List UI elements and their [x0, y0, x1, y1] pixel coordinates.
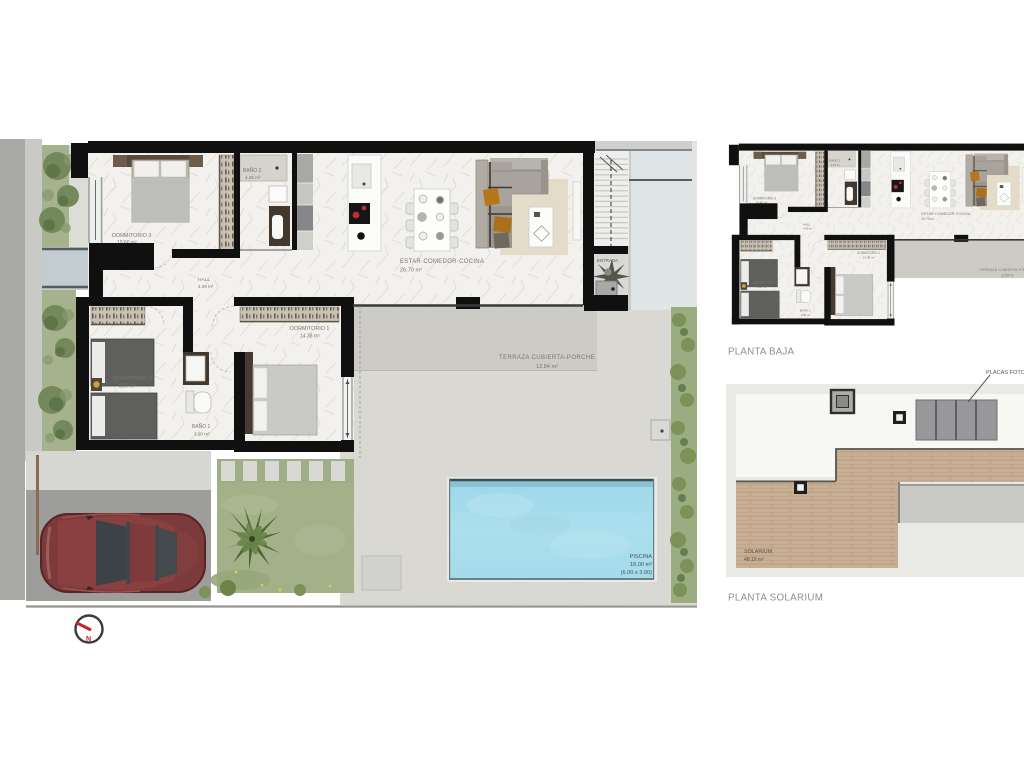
svg-text:TERRAZA CUBIERTA-PORCHE: TERRAZA CUBIERTA-PORCHE — [499, 355, 595, 361]
svg-text:DORMITORIO 3: DORMITORIO 3 — [112, 233, 151, 239]
svg-text:8.87 m²: 8.87 m² — [119, 384, 136, 390]
svg-text:PLANTA BAJA: PLANTA BAJA — [728, 347, 795, 358]
svg-text:ENTRADA: ENTRADA — [597, 258, 618, 263]
svg-text:ESTAR·COMEDOR·COCINA: ESTAR·COMEDOR·COCINA — [400, 259, 484, 265]
svg-text:DORMITORIO 1: DORMITORIO 1 — [290, 326, 329, 332]
svg-text:14.38 m²: 14.38 m² — [300, 334, 320, 340]
svg-text:18.00 m²: 18.00 m² — [630, 562, 652, 568]
svg-text:PLANTA SOLARIUM: PLANTA SOLARIUM — [728, 593, 823, 604]
svg-text:SOLARIUM: SOLARIUM — [744, 549, 773, 555]
svg-text:12.84 m²: 12.84 m² — [536, 364, 558, 370]
svg-text:N: N — [86, 636, 91, 643]
svg-text:(6.00 x 3.00): (6.00 x 3.00) — [621, 570, 653, 576]
svg-text:48.19 m²: 48.19 m² — [744, 557, 764, 563]
svg-text:DORMITORIO 2: DORMITORIO 2 — [113, 376, 152, 382]
svg-text:HALL: HALL — [198, 277, 210, 283]
svg-text:PISCINA: PISCINA — [630, 554, 653, 560]
svg-text:BAÑO 1: BAÑO 1 — [192, 423, 211, 430]
svg-text:3.90 m²: 3.90 m² — [194, 432, 210, 437]
svg-text:26.70 m²: 26.70 m² — [400, 268, 422, 274]
svg-text:4.25 m²: 4.25 m² — [245, 175, 261, 180]
svg-text:4.09 m²: 4.09 m² — [198, 284, 214, 289]
svg-text:BAÑO 2: BAÑO 2 — [243, 167, 262, 174]
svg-text:PLACAS FOTOVOLT: PLACAS FOTOVOLT — [986, 370, 1024, 376]
